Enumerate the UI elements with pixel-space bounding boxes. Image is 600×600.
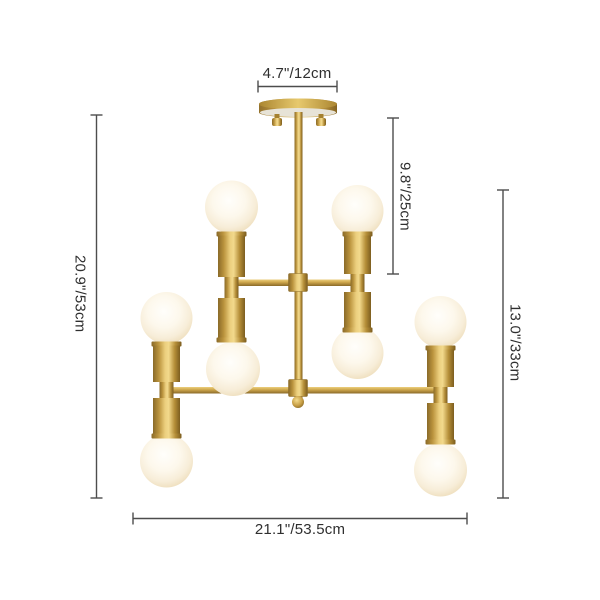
canopy-top-surface	[259, 99, 337, 110]
dimension-label-body-height: 13.0"/33cm	[506, 298, 523, 388]
dimension-line-total-height	[91, 115, 103, 498]
upper-hub	[289, 274, 308, 292]
socket-columns	[152, 232, 456, 445]
bulb-lower-left-down	[140, 435, 193, 488]
socket-column-lower-right	[426, 346, 456, 445]
product-dimension-diagram: 4.7"/12cm 9.8"/25cm 20.9"/53cm 13.0"/33c…	[0, 0, 600, 600]
center-stem	[295, 112, 303, 399]
socket-column-upper-left	[217, 232, 247, 343]
bulb-upper-left-down	[206, 342, 260, 396]
bulb-upper-right-down	[332, 327, 384, 379]
bulbs	[140, 181, 467, 497]
dimension-label-total-height: 20.9"/53cm	[71, 249, 88, 339]
dimension-label-canopy-width: 4.7"/12cm	[217, 66, 377, 83]
bulb-lower-right-up	[415, 296, 467, 348]
lower-hub	[289, 380, 308, 397]
dimension-label-stem-drop: 9.8"/25cm	[396, 152, 413, 240]
bulb-upper-right-up	[332, 185, 384, 237]
ball-finial	[292, 396, 304, 408]
bulb-lower-left-up	[141, 292, 193, 344]
bulb-lower-right-down	[414, 444, 467, 497]
dimension-label-total-width: 21.1"/53.5cm	[220, 522, 380, 539]
bulb-upper-left-up	[205, 181, 258, 234]
